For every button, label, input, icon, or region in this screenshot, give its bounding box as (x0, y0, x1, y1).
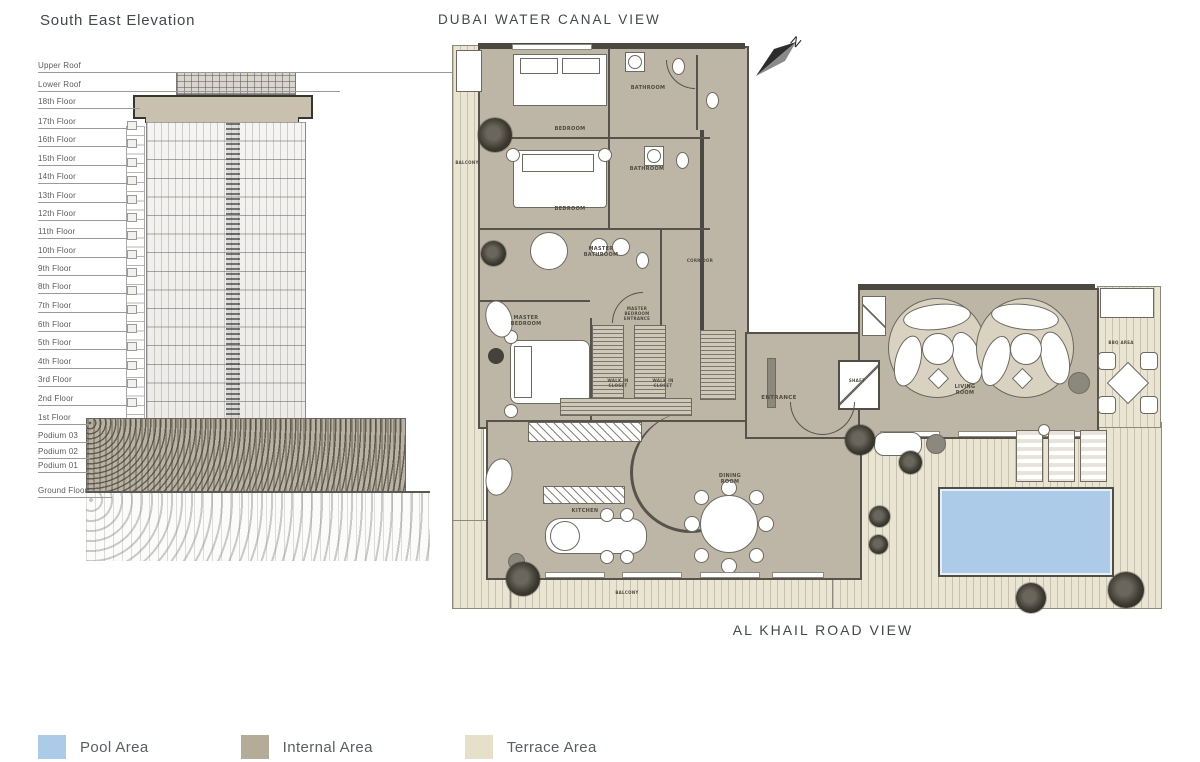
room-label-master-bathroom: MASTER BATHROOM (578, 246, 624, 259)
dining-chair-nw (694, 490, 709, 505)
bed-2-pillows (522, 154, 594, 172)
basin-bowl-2 (647, 149, 661, 163)
floor-plan: BEDROOM BATHROOM BEDROOM BATHROOM MASTER… (0, 0, 1200, 650)
left-side-table (488, 348, 504, 364)
tv-cabinet (862, 296, 886, 336)
basin-bowl-1 (628, 55, 642, 69)
wall-bed-bath (608, 48, 610, 228)
wall-powder (696, 55, 698, 130)
legend-item-terrace: Terrace Area (465, 735, 675, 759)
dining-chair-se (749, 548, 764, 563)
dining-table (700, 495, 758, 553)
pool-lounger-1 (1016, 430, 1043, 482)
wc-master (636, 252, 649, 269)
closet-4 (700, 330, 736, 400)
sofa-cluster-2 (976, 298, 1074, 398)
stool-2 (620, 508, 634, 522)
wall-north-living (858, 284, 1095, 290)
dining-chair-ne (749, 490, 764, 505)
pool (938, 487, 1114, 577)
left-planter (456, 50, 482, 92)
sofa-seg (902, 301, 972, 334)
master-nightstand-2 (504, 404, 518, 418)
legend-swatch-terrace (465, 735, 493, 759)
room-label-balcony-bottom: BALCONY (615, 590, 638, 595)
tree (506, 562, 540, 596)
pool-side-table (1038, 424, 1050, 436)
window (700, 572, 760, 578)
tree (869, 535, 888, 554)
bed-1-pillow-left (520, 58, 558, 74)
dining-chair-sw (694, 548, 709, 563)
dining-chair-w (684, 516, 700, 532)
room-label-master-bedroom: MASTER BEDROOM (506, 315, 546, 328)
bbq-chair-2 (1140, 352, 1158, 370)
room-label-walk-in-closet-1: WALK IN CLOSET (604, 378, 632, 388)
sofa-cluster-1 (888, 298, 986, 398)
room-label-entrance: ENTRANCE (761, 395, 796, 402)
window (958, 431, 1018, 437)
tree (899, 451, 922, 474)
legend-label-terrace: Terrace Area (507, 739, 597, 756)
room-label-bedroom-1: BEDROOM (555, 126, 586, 132)
kitchen-sink-round (550, 521, 580, 551)
stool-1 (600, 508, 614, 522)
tree (481, 241, 506, 266)
closet-3 (560, 398, 692, 416)
window (512, 44, 592, 50)
pouf (1012, 368, 1033, 389)
room-label-living-room: LIVING ROOM (948, 384, 982, 397)
tree (1016, 583, 1046, 613)
pouf (928, 368, 949, 389)
legend-swatch-internal (241, 735, 269, 759)
wall-corridor (700, 130, 704, 330)
room-label-corridor: CORRIDOR (687, 258, 713, 263)
wc-powder (706, 92, 719, 109)
pool-lounger-2 (1048, 430, 1075, 482)
plan-title-bottom-text: AL KHAIL ROAD VIEW (733, 622, 913, 638)
room-label-bedroom-2: BEDROOM (555, 206, 586, 212)
window (772, 572, 824, 578)
master-bed-headboard (514, 346, 532, 398)
nightstand-1 (506, 148, 520, 162)
dining-chair-e (758, 516, 774, 532)
wall-bed2-master (480, 228, 710, 230)
legend-item-pool: Pool Area (38, 735, 227, 759)
bbq-chair-1 (1098, 352, 1116, 370)
master-tub (530, 232, 568, 270)
room-label-walk-in-closet-2: WALK IN CLOSET (649, 378, 677, 388)
wall-bed1-bed2 (480, 137, 710, 139)
wall-masterbath (660, 230, 662, 330)
plan-title-bottom: AL KHAIL ROAD VIEW (733, 622, 913, 640)
wc-bath2 (676, 152, 689, 169)
pool-lounger-3 (1080, 430, 1107, 482)
kitchen-counter-mid (543, 486, 625, 504)
stool-3 (600, 550, 614, 564)
tree (478, 118, 512, 152)
room-label-balcony-left: BALCONY (455, 160, 478, 165)
window (622, 572, 682, 578)
outdoor-side-table (926, 434, 946, 454)
room-label-master-bedroom-entrance: MASTER BEDROOM ENTRANCE (615, 306, 659, 321)
coffee-table (922, 333, 954, 365)
tree (869, 506, 890, 527)
legend-item-internal: Internal Area (241, 735, 451, 759)
stool-4 (620, 550, 634, 564)
legend: Pool Area Internal Area Terrace Area (38, 735, 675, 759)
page: South East Elevation Upper RoofLower Roo… (0, 0, 1200, 762)
room-label-bathroom-1: BATHROOM (631, 85, 666, 91)
bbq-planter (1100, 288, 1154, 318)
legend-swatch-pool (38, 735, 66, 759)
bbq-chair-3 (1098, 396, 1116, 414)
tree (845, 425, 875, 455)
room-label-dining-room: DINING ROOM (710, 473, 750, 486)
room-label-shaft: SHAFT (849, 378, 865, 383)
kitchen-counter-top (528, 422, 642, 442)
bed-1-pillow-right (562, 58, 600, 74)
legend-label-internal: Internal Area (283, 739, 373, 756)
window (545, 572, 605, 578)
side-table-gray (1068, 372, 1090, 394)
bbq-chair-4 (1140, 396, 1158, 414)
tree (1108, 572, 1144, 608)
legend-label-pool: Pool Area (80, 739, 149, 756)
coffee-table (1010, 333, 1042, 365)
sofa-seg (990, 301, 1060, 334)
room-label-kitchen: KITCHEN (572, 508, 599, 514)
room-label-bbq-area: BBQ AREA (1108, 340, 1133, 345)
room-label-bathroom-2: BATHROOM (630, 166, 665, 172)
nightstand-2 (598, 148, 612, 162)
